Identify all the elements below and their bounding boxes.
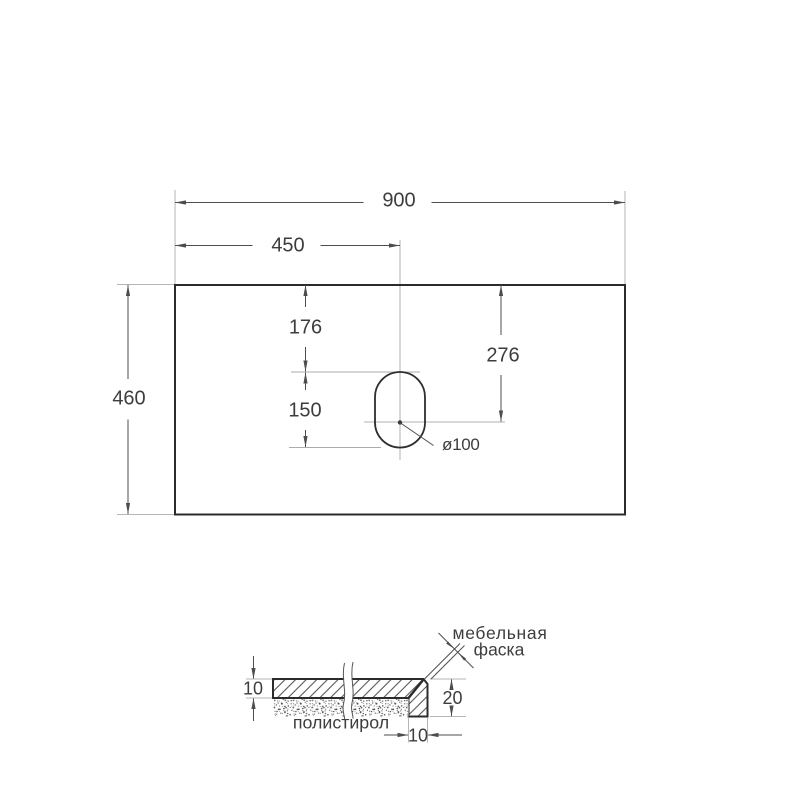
svg-text:10: 10 [408,726,428,746]
svg-text:900: 900 [382,190,415,212]
svg-text:450: 450 [271,235,304,257]
svg-text:10: 10 [243,679,263,699]
svg-text:фаска: фаска [474,640,525,660]
svg-text:полистирол: полистирол [293,713,389,733]
svg-text:ø100: ø100 [442,435,480,454]
svg-text:20: 20 [442,688,462,708]
svg-text:276: 276 [486,345,519,367]
svg-text:176: 176 [289,317,322,339]
svg-text:460: 460 [112,388,145,410]
svg-text:150: 150 [288,400,321,422]
